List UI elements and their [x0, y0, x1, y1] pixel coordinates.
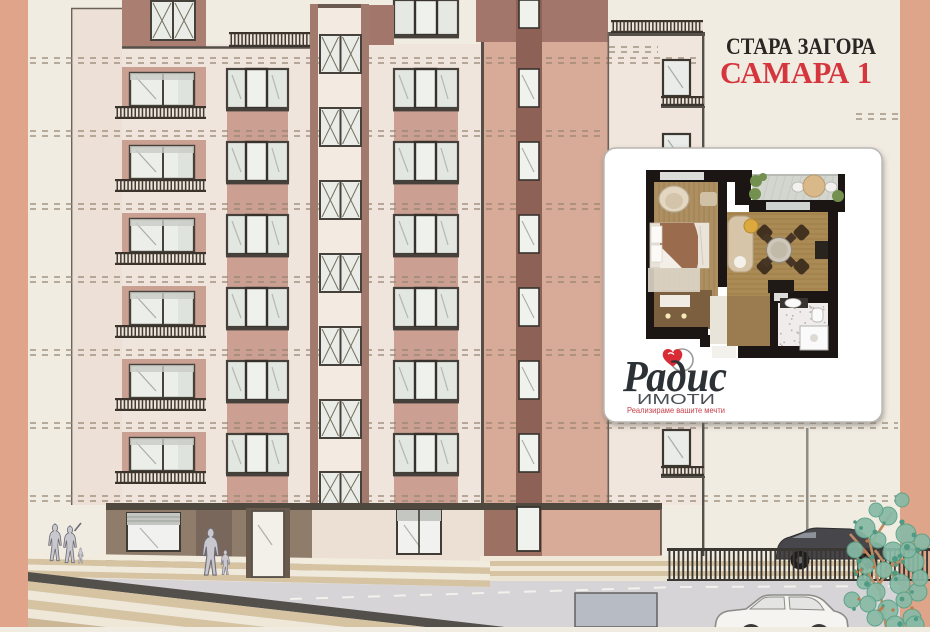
svg-text:Реализираме вашите мечти: Реализираме вашите мечти — [627, 406, 725, 415]
svg-text:САМАРА 1: САМАРА 1 — [720, 55, 872, 90]
